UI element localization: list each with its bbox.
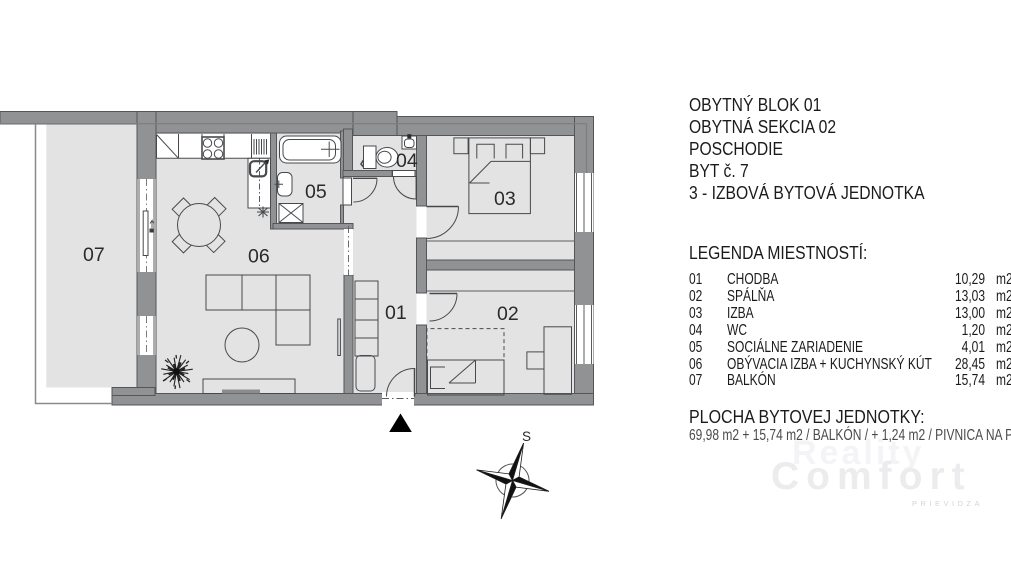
svg-text:S: S [522,429,531,444]
svg-text:06: 06 [248,246,270,268]
svg-text:05: 05 [305,181,327,203]
svg-text:03: 03 [494,188,516,210]
svg-text:07: 07 [83,244,105,266]
svg-text:04: 04 [396,150,418,172]
svg-text:01: 01 [385,302,407,324]
svg-text:02: 02 [497,303,519,325]
